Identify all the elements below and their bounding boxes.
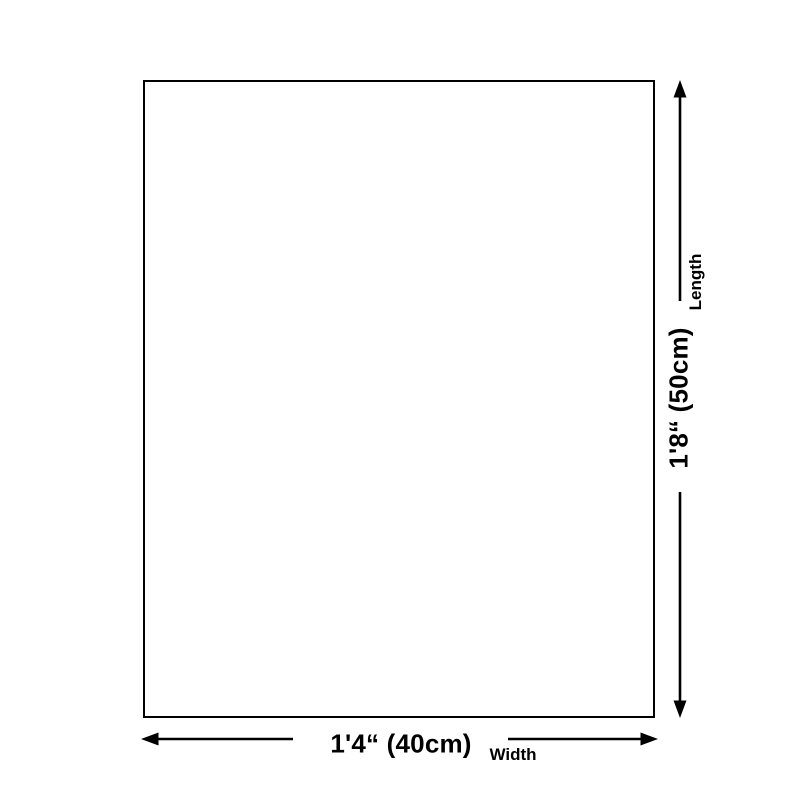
size-diagram: 1'4“ (40cm) Width 1'8“ (50cm) Length: [0, 0, 800, 800]
length-dimension-label: Length: [686, 254, 706, 311]
length-dimension-value: 1'8“ (50cm): [664, 327, 695, 468]
arrow-up-icon: [674, 80, 687, 98]
width-arrow-left: [141, 733, 293, 746]
product-outline: [143, 80, 655, 718]
arrow-right-icon: [641, 733, 659, 746]
arrow-left-icon: [141, 733, 159, 746]
length-arrow-up: [674, 80, 687, 301]
arrow-down-icon: [674, 701, 687, 719]
width-arrow-right: [508, 733, 658, 746]
width-dimension-value: 1'4“ (40cm): [330, 729, 471, 760]
length-arrow-down: [674, 492, 687, 718]
width-dimension-label: Width: [489, 745, 536, 765]
